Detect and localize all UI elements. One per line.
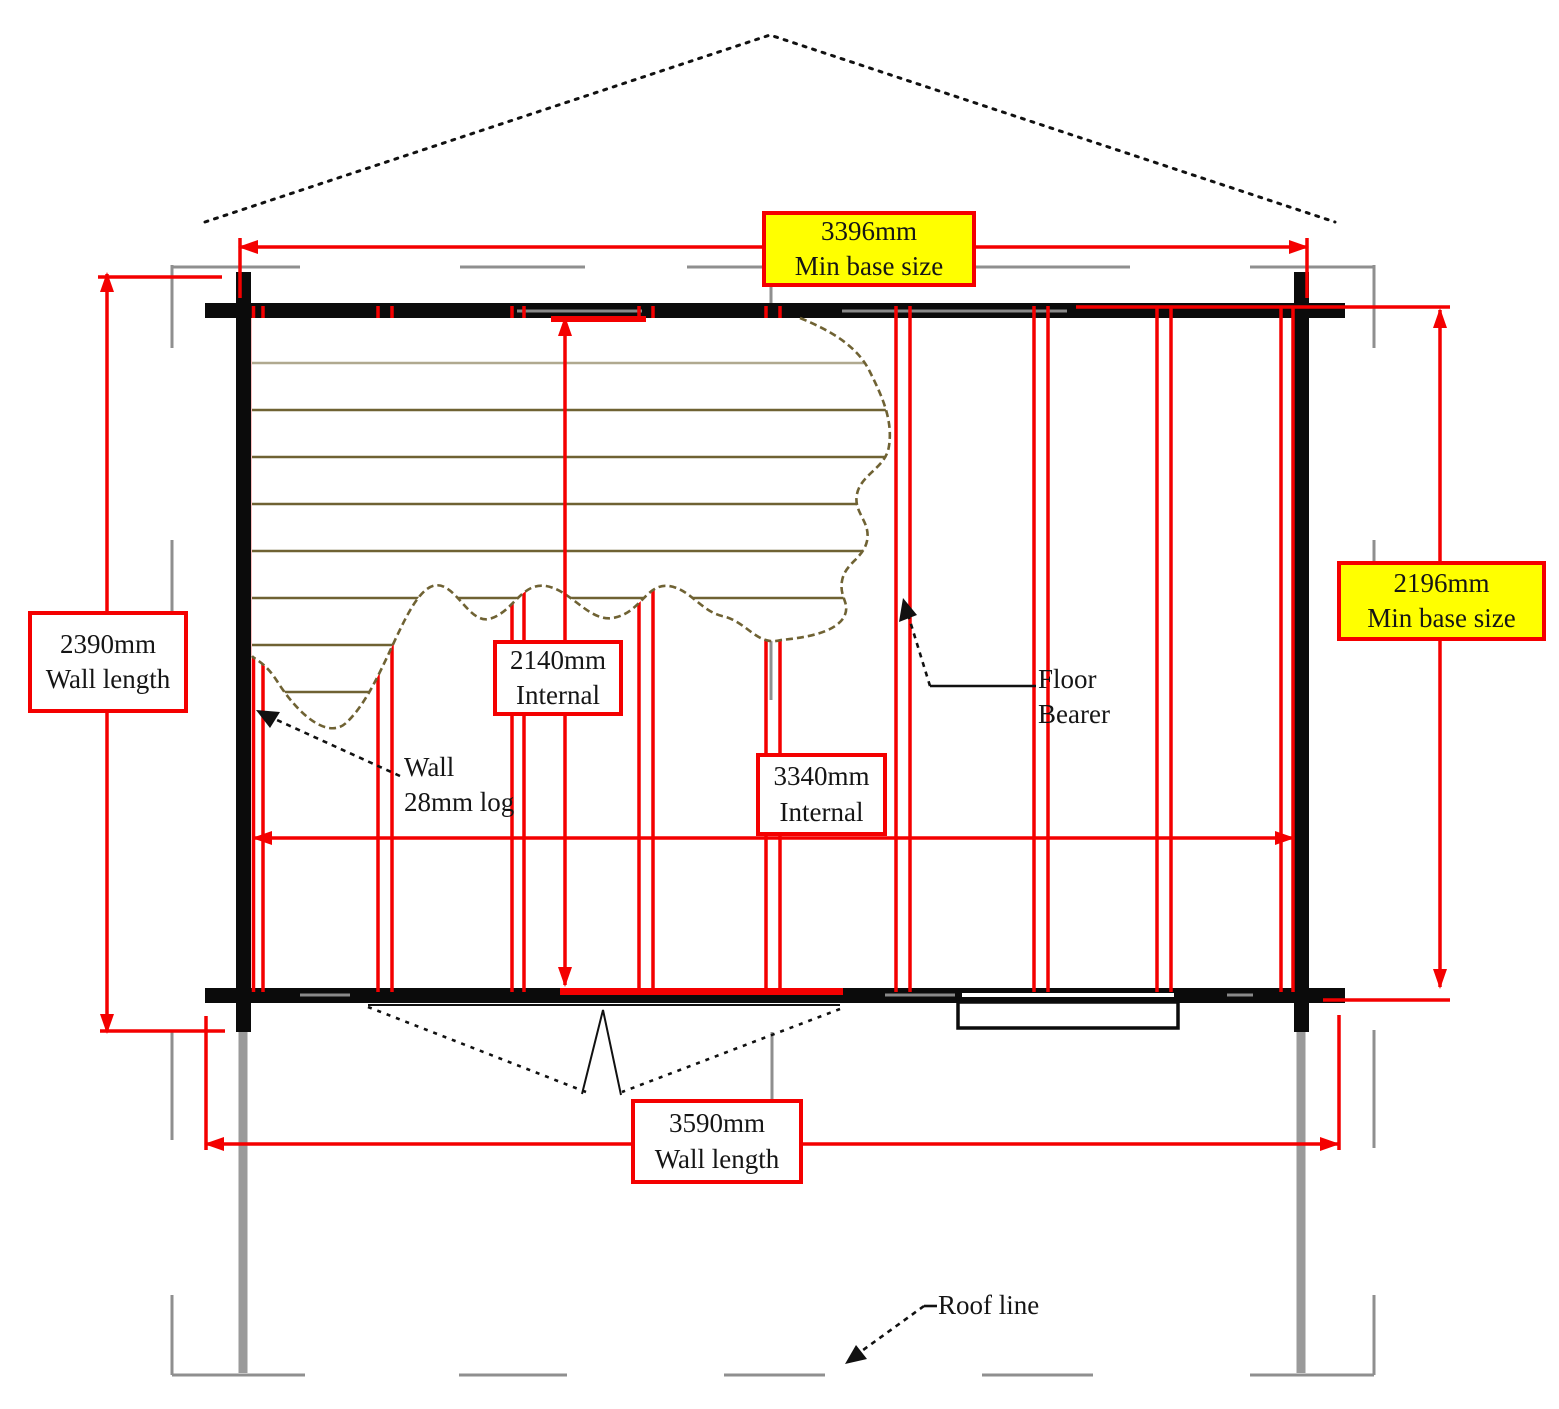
right-wall (1294, 272, 1309, 1032)
roof-peak-line (205, 35, 1335, 222)
internal-width-value: 2140mm (510, 643, 606, 678)
floor-bearer-line1: Floor (1038, 662, 1097, 697)
internal-length-caption: Internal (780, 795, 864, 830)
base-width-value: 3396mm (821, 214, 917, 249)
door-leaves (582, 1010, 621, 1095)
label-base-width: 3396mm Min base size (762, 211, 976, 287)
label-internal-length: 3340mm Internal (756, 753, 887, 836)
label-wall-note: Wall 28mm log (404, 750, 514, 820)
label-internal-width: 2140mm Internal (493, 640, 623, 716)
label-base-depth: 2196mm Min base size (1337, 561, 1546, 641)
base-depth-caption: Min base size (1367, 601, 1515, 636)
wall-note-line2: 28mm log (404, 785, 514, 820)
floor-bearer-line2: Bearer (1038, 697, 1110, 732)
roof-line-text: Roof line (938, 1288, 1039, 1323)
wall-note-line1: Wall (404, 750, 454, 785)
wall-left-caption: Wall length (46, 662, 171, 697)
floor-bearer-leader (899, 598, 1036, 686)
door-swing-right (622, 1009, 840, 1092)
door-head-red-mark (560, 988, 843, 995)
internal-width-caption: Internal (516, 678, 600, 713)
base-width-caption: Min base size (795, 249, 943, 284)
label-roof-line: Roof line (938, 1288, 1039, 1323)
wall-bottom-value: 3590mm (669, 1106, 765, 1141)
label-floor-bearer: Floor Bearer (1038, 662, 1110, 732)
base-depth-value: 2196mm (1393, 566, 1489, 601)
internal-length-value: 3340mm (773, 759, 869, 794)
wall-bottom-caption: Wall length (655, 1142, 780, 1177)
left-wall (236, 272, 251, 1032)
roof-line-leader (845, 1306, 937, 1364)
label-wall-bottom: 3590mm Wall length (631, 1099, 803, 1184)
dim-2196-base-depth (1076, 307, 1450, 1000)
door-swing-left (368, 1007, 586, 1092)
log-cabin-floor-plan-diagram: 3396mm Min base size 2196mm Min base siz… (0, 0, 1559, 1409)
label-wall-left: 2390mm Wall length (28, 611, 188, 713)
wall-left-value: 2390mm (60, 627, 156, 662)
